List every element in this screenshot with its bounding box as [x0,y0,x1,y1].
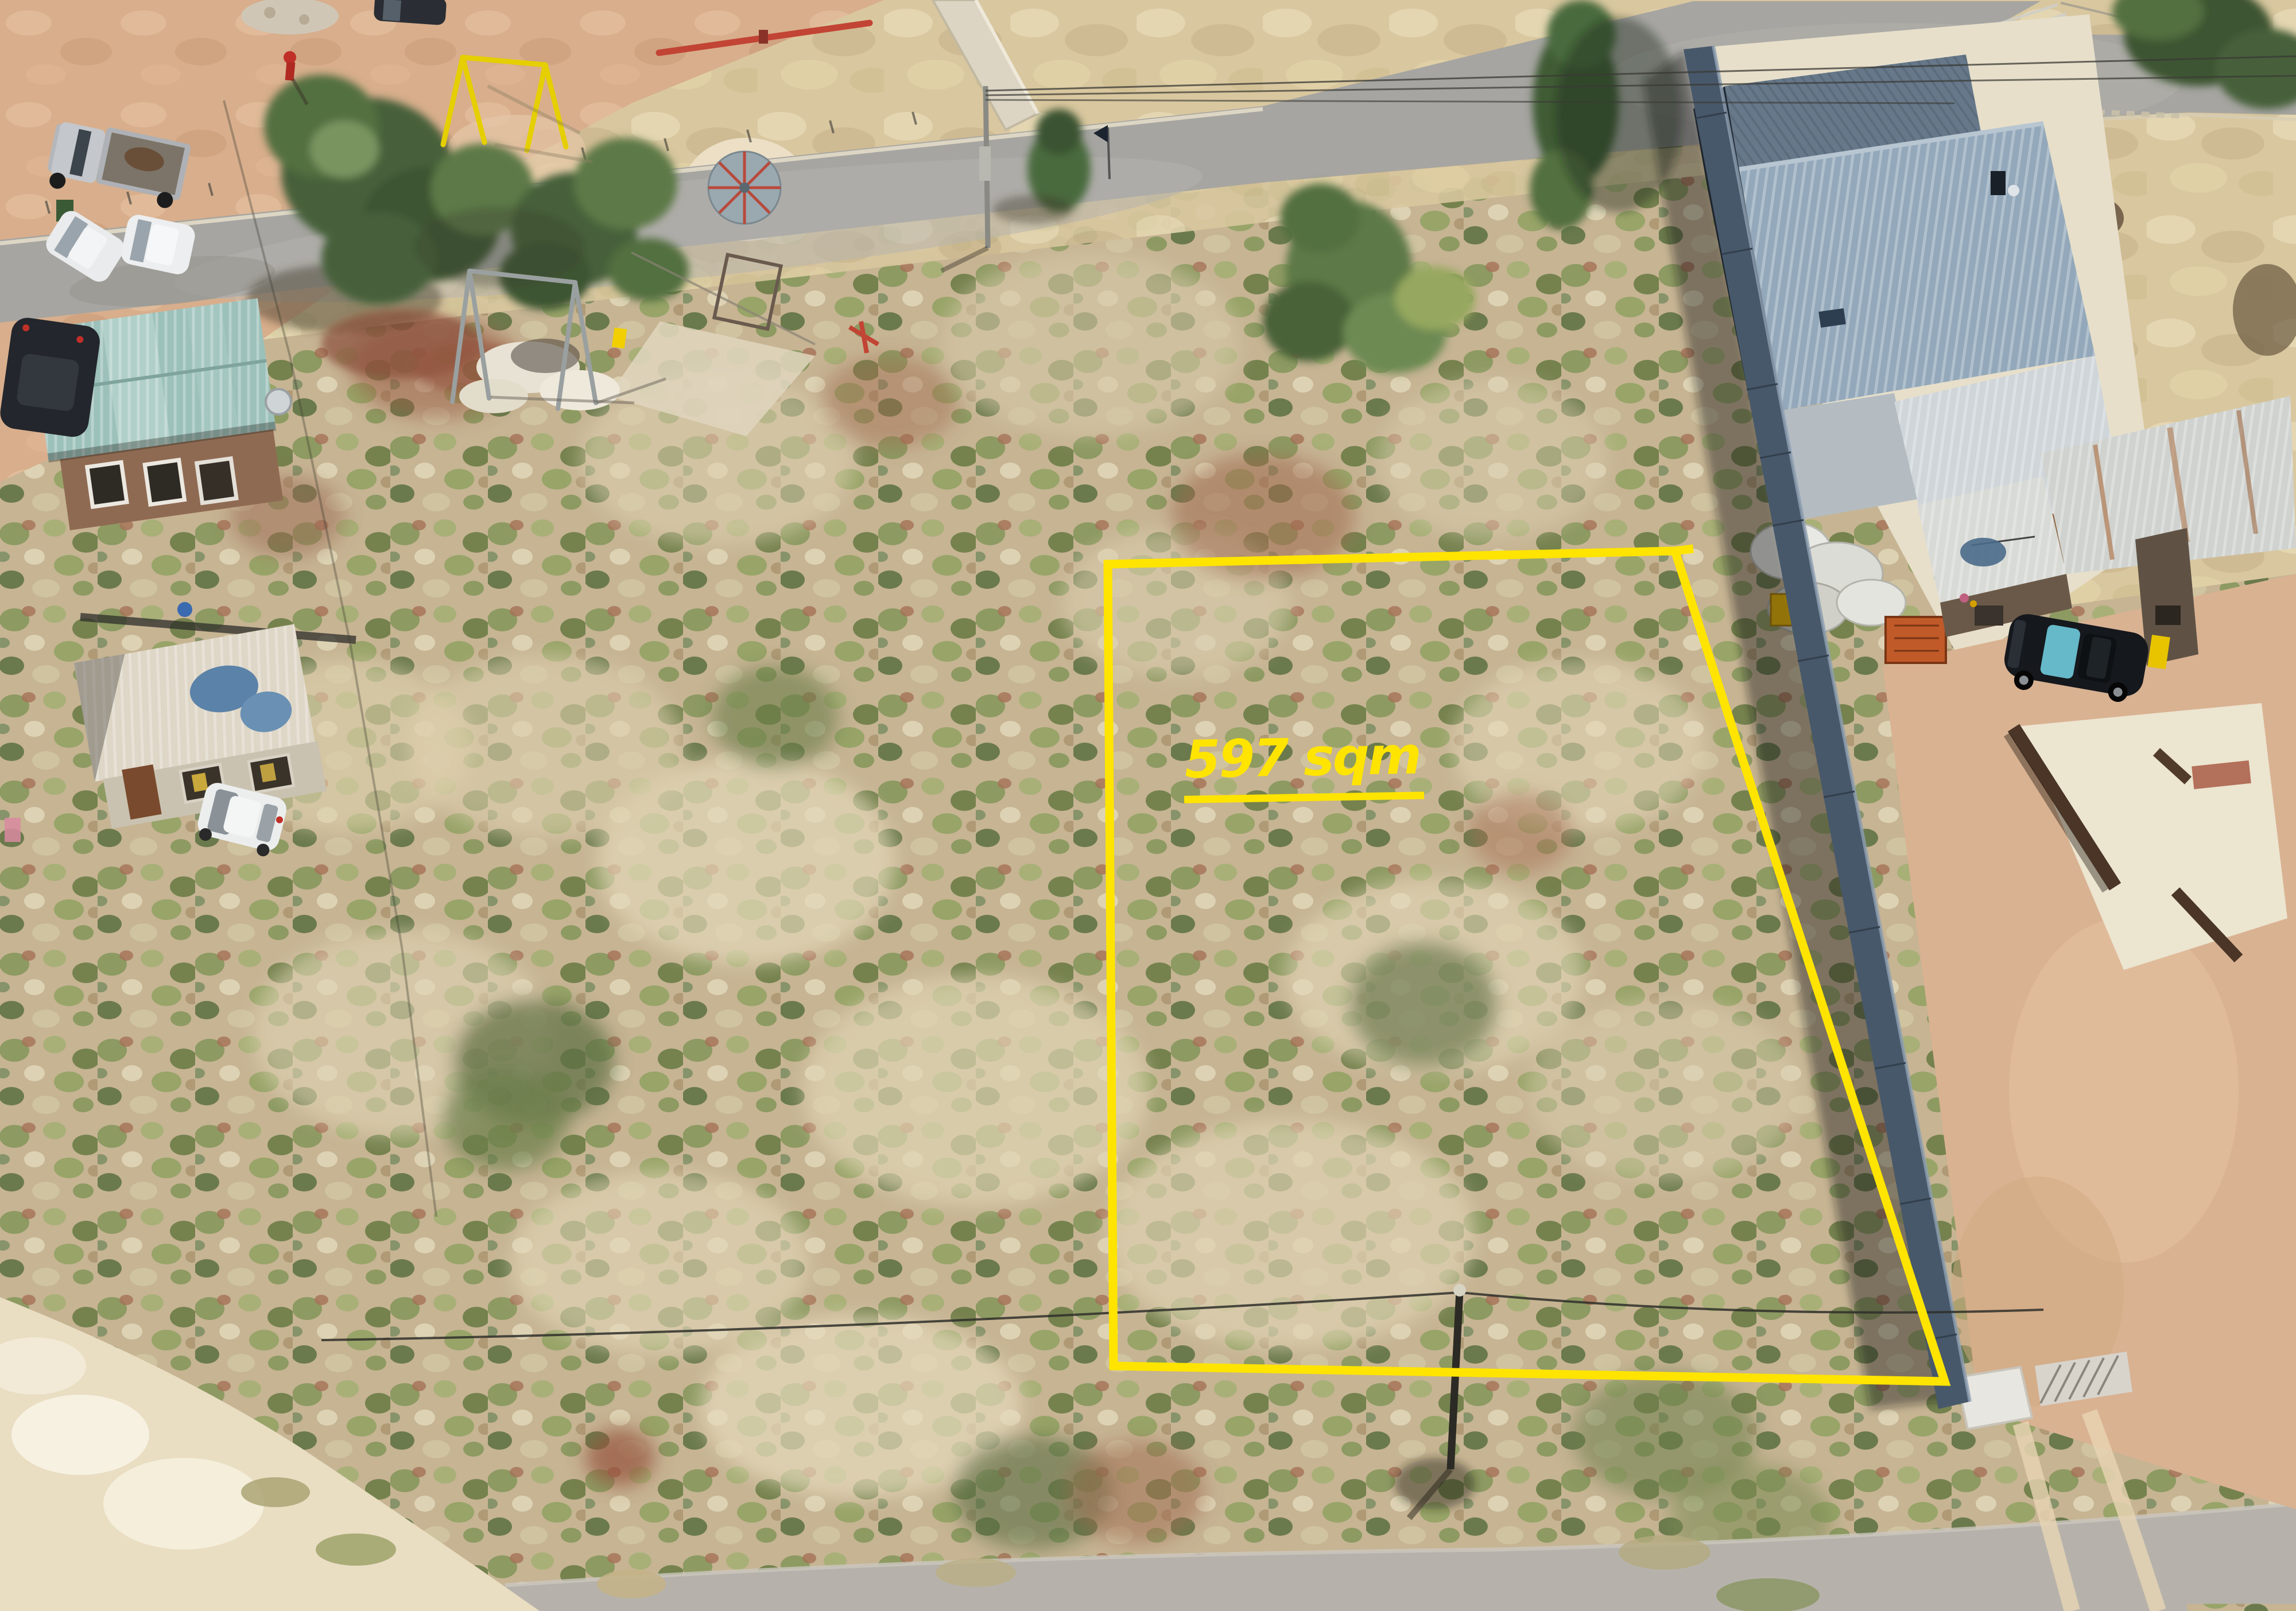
satellite-dish [266,389,291,414]
black-suv [0,316,102,439]
pink-object [5,818,21,842]
merry-go-round [708,152,781,224]
plot-area-label: 597 sqm [1183,725,1424,803]
orange-container [1886,617,1946,663]
aerial-scene [0,0,2296,1611]
aerial-drone-photo: 597 sqm [0,0,2296,1611]
yellow-wheelie-bin [612,328,627,349]
blue-barrel [177,602,192,617]
tricycle [1960,593,1969,603]
chimney [1991,171,2006,195]
